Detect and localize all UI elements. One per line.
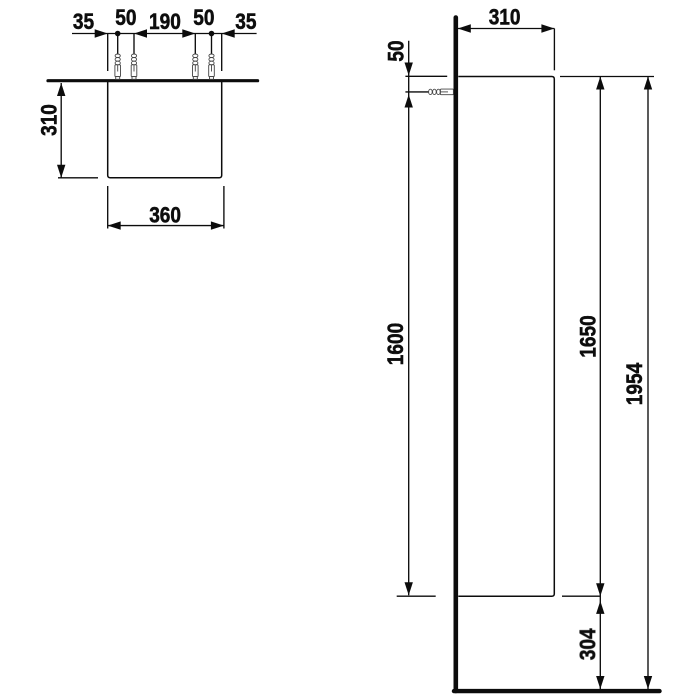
svg-text:1650: 1650 <box>576 315 601 357</box>
svg-text:310: 310 <box>37 104 62 136</box>
svg-text:50: 50 <box>193 5 214 30</box>
svg-text:50: 50 <box>383 40 408 61</box>
svg-text:310: 310 <box>489 5 521 30</box>
svg-text:304: 304 <box>575 628 600 660</box>
svg-text:360: 360 <box>149 202 181 227</box>
svg-text:50: 50 <box>115 5 136 30</box>
svg-text:35: 35 <box>73 9 94 34</box>
svg-text:35: 35 <box>235 9 256 34</box>
svg-text:1954: 1954 <box>622 362 647 405</box>
svg-text:1600: 1600 <box>383 323 408 365</box>
svg-text:190: 190 <box>149 9 181 34</box>
